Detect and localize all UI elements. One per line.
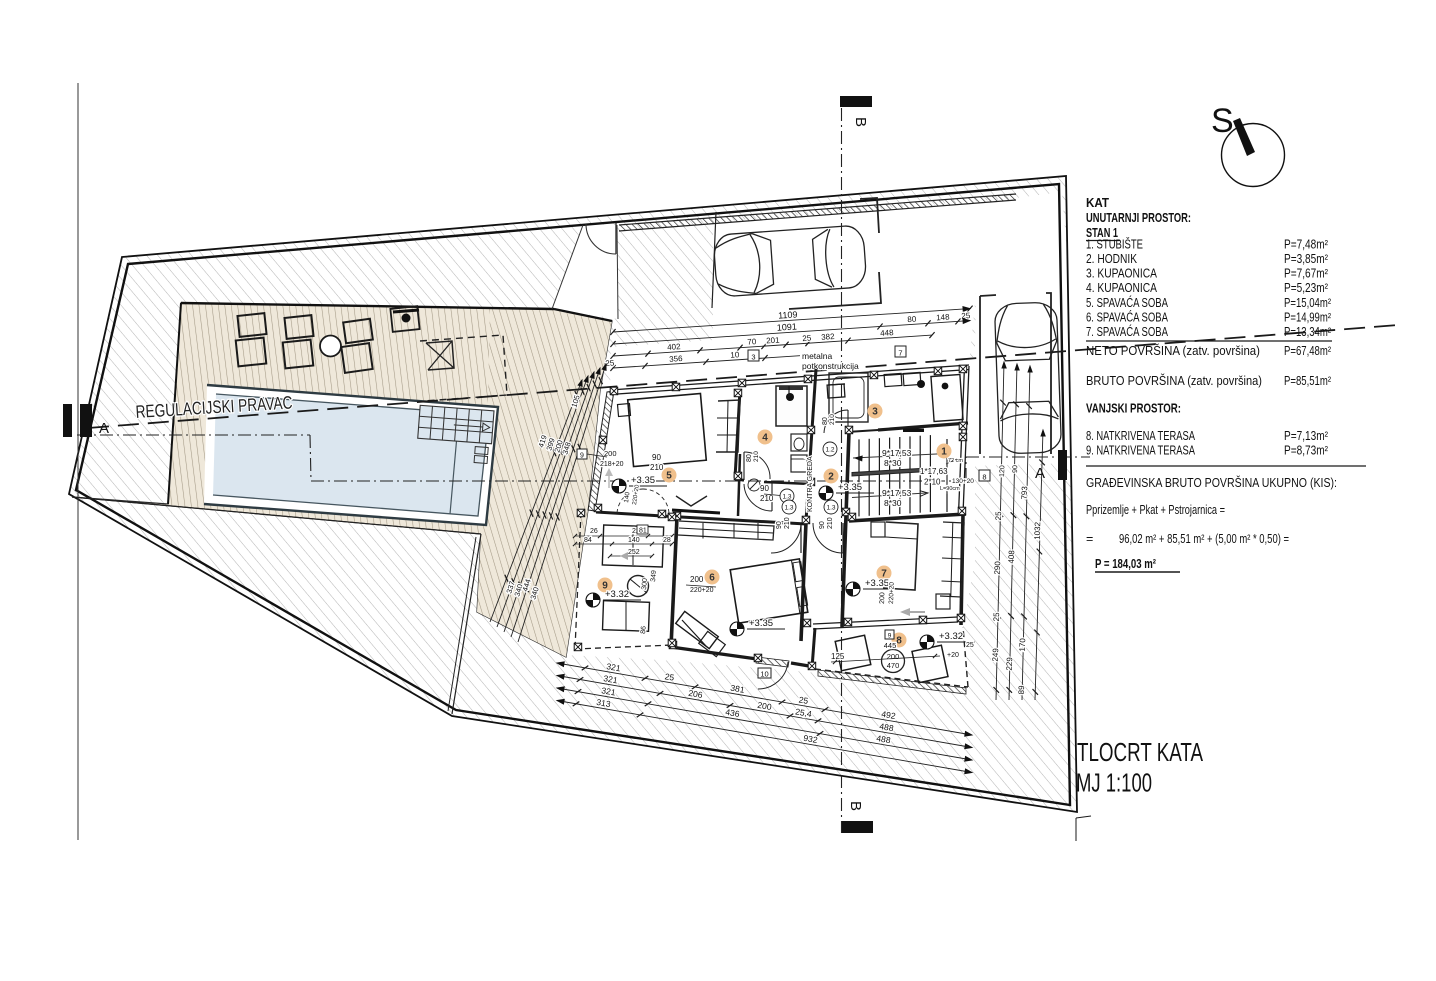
- svg-text:1: 1: [941, 447, 947, 458]
- svg-text:80: 80: [907, 315, 917, 325]
- svg-text:P=8,73m²: P=8,73m²: [1284, 443, 1329, 458]
- svg-text:MJ 1:100: MJ 1:100: [1076, 770, 1152, 798]
- svg-text:8*30: 8*30: [884, 458, 902, 468]
- svg-text:1.3: 1.3: [784, 505, 793, 512]
- svg-text:1.2: 1.2: [825, 447, 834, 454]
- svg-text:P=7,13m²: P=7,13m²: [1284, 428, 1329, 443]
- svg-text:=: =: [1086, 532, 1093, 546]
- svg-text:25: 25: [966, 642, 974, 649]
- svg-text:P=7,48m²: P=7,48m²: [1284, 237, 1329, 252]
- svg-text:210: 210: [829, 414, 836, 425]
- svg-text:90: 90: [819, 521, 826, 529]
- svg-text:80: 80: [746, 454, 753, 462]
- svg-text:+3.32: +3.32: [605, 589, 629, 600]
- svg-text:P=67,48m²: P=67,48m²: [1284, 343, 1331, 358]
- svg-text:P = 184,03 m²: P = 184,03 m²: [1095, 556, 1156, 571]
- svg-text:8*30: 8*30: [884, 498, 902, 508]
- svg-text:140: 140: [628, 537, 640, 544]
- svg-text:1032: 1032: [1033, 521, 1043, 540]
- svg-text:metalna: metalna: [802, 351, 833, 361]
- svg-text:P=15,04m²: P=15,04m²: [1284, 295, 1331, 310]
- svg-text:90: 90: [760, 484, 769, 493]
- svg-text:125: 125: [831, 652, 845, 661]
- svg-text:229: 229: [1005, 657, 1014, 671]
- svg-text:26: 26: [590, 528, 598, 535]
- svg-text:5. SPAVAĆA SOBA: 5. SPAVAĆA SOBA: [1086, 295, 1168, 310]
- svg-text:210: 210: [784, 517, 791, 529]
- svg-text:P=3,85m²: P=3,85m²: [1284, 251, 1329, 266]
- svg-text:1.3: 1.3: [782, 494, 791, 501]
- svg-text:10: 10: [730, 350, 740, 360]
- svg-text:6. SPAVAĆA SOBA: 6. SPAVAĆA SOBA: [1086, 310, 1168, 325]
- svg-text:P=85,51m²: P=85,51m²: [1284, 373, 1331, 388]
- svg-text:+3.32: +3.32: [939, 631, 963, 642]
- svg-text:9: 9: [888, 633, 892, 640]
- svg-text:P=13,34m²: P=13,34m²: [1284, 324, 1331, 339]
- svg-text:81: 81: [639, 528, 647, 535]
- svg-text:90: 90: [652, 453, 661, 462]
- svg-text:B: B: [852, 117, 869, 127]
- svg-text:220+20: 220+20: [690, 587, 714, 594]
- svg-text:VANJSKI PROSTOR:: VANJSKI PROSTOR:: [1086, 401, 1181, 416]
- svg-text:GRAĐEVINSKA BRUTO POVRŠINA UKU: GRAĐEVINSKA BRUTO POVRŠINA UKUPNO (KIS):: [1086, 475, 1337, 490]
- svg-text:2*10: 2*10: [924, 478, 941, 487]
- svg-text:7: 7: [898, 349, 902, 358]
- svg-text:210: 210: [753, 451, 760, 462]
- svg-text:96,02 m² + 85,51 m² + (5,00 m²: 96,02 m² + 85,51 m² + (5,00 m² * 0,50) =: [1119, 532, 1289, 546]
- svg-text:200: 200: [690, 575, 704, 584]
- svg-text:1091: 1091: [776, 321, 797, 332]
- svg-text:201: 201: [766, 336, 780, 346]
- svg-text:25: 25: [798, 695, 809, 707]
- svg-text:1.3: 1.3: [826, 505, 835, 512]
- svg-text:10: 10: [760, 670, 768, 679]
- svg-text:300: 300: [641, 578, 649, 590]
- svg-text:+3.35: +3.35: [865, 578, 889, 589]
- svg-text:S: S: [1211, 102, 1234, 140]
- svg-text:P=5,23m²: P=5,23m²: [1284, 280, 1329, 295]
- svg-text:252: 252: [628, 549, 640, 556]
- svg-text:5: 5: [666, 471, 672, 482]
- svg-text:470: 470: [887, 661, 900, 670]
- svg-text:A: A: [99, 420, 109, 437]
- svg-text:2. HODNIK: 2. HODNIK: [1086, 251, 1137, 266]
- svg-text:8. NATKRIVENA TERASA: 8. NATKRIVENA TERASA: [1086, 428, 1195, 443]
- svg-text:220+20: 220+20: [888, 582, 896, 604]
- svg-text:TLOCRT KATA: TLOCRT KATA: [1077, 739, 1203, 767]
- svg-text:KAT: KAT: [1086, 195, 1109, 210]
- svg-text:89: 89: [1017, 685, 1026, 695]
- svg-text:9. NATKRIVENA TERASA: 9. NATKRIVENA TERASA: [1086, 443, 1195, 458]
- svg-text:84: 84: [584, 537, 592, 544]
- svg-text:3: 3: [872, 407, 878, 418]
- svg-text:6: 6: [709, 573, 715, 584]
- svg-text:448: 448: [880, 328, 894, 338]
- svg-text:170: 170: [1018, 638, 1027, 652]
- svg-text:200: 200: [887, 652, 900, 661]
- svg-text:potkonstrukcija: potkonstrukcija: [802, 361, 859, 371]
- svg-text:70: 70: [747, 337, 757, 347]
- svg-text:Pprizemlje + Pkat + Pstrojarni: Pprizemlje + Pkat + Pstrojarnica =: [1086, 503, 1225, 517]
- svg-text:28: 28: [663, 537, 671, 544]
- svg-text:9*17,53: 9*17,53: [882, 488, 912, 498]
- svg-text:P=14,99m²: P=14,99m²: [1284, 310, 1331, 325]
- svg-text:8: 8: [896, 636, 902, 647]
- svg-text:25: 25: [802, 333, 812, 343]
- svg-text:KONTRA GREDA: KONTRA GREDA: [807, 456, 814, 512]
- svg-text:402: 402: [667, 342, 681, 352]
- svg-text:90: 90: [776, 521, 783, 529]
- svg-text:72 cm: 72 cm: [948, 458, 963, 464]
- svg-text:3. KUPAONICA: 3. KUPAONICA: [1086, 266, 1157, 281]
- svg-text:1109: 1109: [778, 309, 798, 320]
- svg-text:4: 4: [762, 433, 768, 444]
- svg-text:3: 3: [751, 353, 755, 362]
- svg-text:7. SPAVAĆA SOBA: 7. SPAVAĆA SOBA: [1086, 324, 1168, 339]
- svg-text:2: 2: [828, 472, 834, 483]
- svg-text:249: 249: [991, 648, 1000, 662]
- svg-text:+3.35: +3.35: [631, 475, 655, 486]
- svg-text:+3.35: +3.35: [838, 482, 862, 493]
- svg-text:408: 408: [1007, 550, 1016, 564]
- svg-text:25: 25: [994, 511, 1003, 521]
- svg-text:1. STUBIŠTE: 1. STUBIŠTE: [1086, 237, 1143, 252]
- svg-text:L=90cm: L=90cm: [940, 486, 960, 492]
- svg-text:9: 9: [580, 453, 584, 460]
- svg-text:B: B: [847, 801, 864, 811]
- svg-text:UNUTARNJI PROSTOR:: UNUTARNJI PROSTOR:: [1086, 210, 1191, 225]
- svg-text:290: 290: [993, 561, 1002, 575]
- svg-text:210: 210: [650, 463, 664, 472]
- svg-text:356: 356: [669, 354, 683, 364]
- svg-text:148: 148: [936, 312, 950, 322]
- svg-text:NETO POVRŠINA (zatv. površina): NETO POVRŠINA (zatv. površina): [1086, 343, 1260, 358]
- svg-text:+3.35: +3.35: [749, 618, 773, 629]
- svg-text:25: 25: [992, 612, 1001, 622]
- svg-text:382: 382: [821, 332, 835, 342]
- svg-text:9*17,53: 9*17,53: [882, 448, 912, 458]
- svg-text:218+20: 218+20: [600, 461, 624, 468]
- svg-text:+20: +20: [947, 652, 959, 659]
- svg-text:130+20: 130+20: [952, 478, 974, 485]
- svg-text:4. KUPAONICA: 4. KUPAONICA: [1086, 280, 1157, 295]
- svg-text:A: A: [1035, 465, 1045, 482]
- svg-text:25: 25: [664, 671, 675, 683]
- svg-text:210: 210: [760, 494, 774, 503]
- svg-text:1*17,63: 1*17,63: [920, 467, 948, 476]
- svg-text:80: 80: [822, 417, 829, 425]
- svg-text:200: 200: [879, 592, 886, 604]
- svg-text:BRUTO POVRŠINA (zatv. površina: BRUTO POVRŠINA (zatv. površina): [1086, 373, 1262, 388]
- svg-text:P=7,67m²: P=7,67m²: [1284, 266, 1329, 281]
- svg-text:120: 120: [999, 465, 1006, 477]
- svg-text:86: 86: [640, 626, 648, 634]
- svg-text:210: 210: [827, 517, 834, 529]
- svg-text:90: 90: [1012, 465, 1019, 473]
- svg-text:349: 349: [650, 570, 658, 582]
- svg-text:8: 8: [982, 473, 986, 482]
- svg-text:25: 25: [605, 358, 615, 368]
- svg-text:793: 793: [1020, 486, 1029, 500]
- svg-text:445: 445: [884, 641, 897, 650]
